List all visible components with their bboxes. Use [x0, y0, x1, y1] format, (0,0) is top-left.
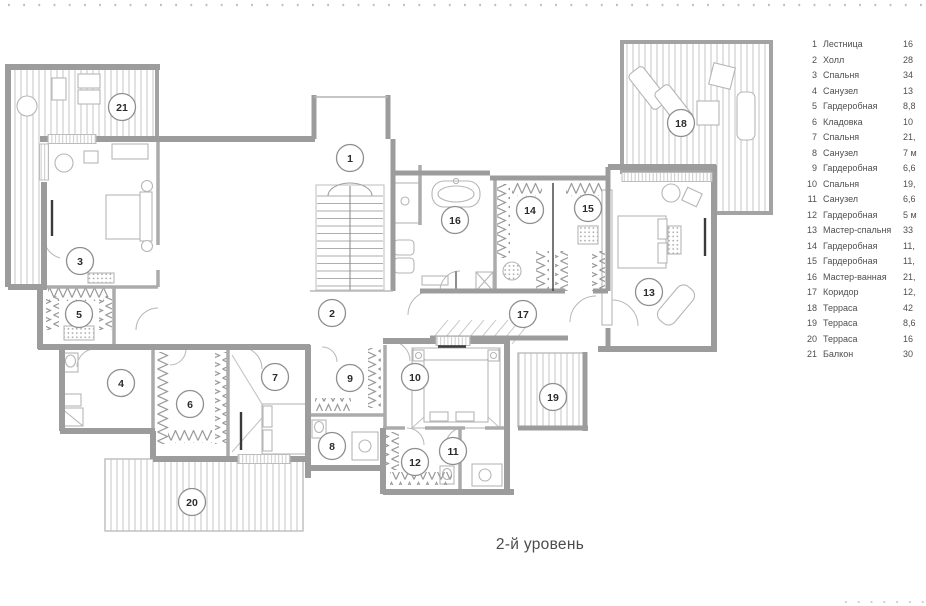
legend-row: 4Санузел13: [806, 84, 926, 100]
legend-room-area: 7 м: [903, 146, 917, 162]
legend-room-name: Холл: [823, 53, 844, 69]
room-legend: 1Лестница16 2Холл28 3Спальня34 4Санузел1…: [806, 37, 926, 363]
legend-room-name: Кладовка: [823, 115, 863, 131]
legend-room-number: 14: [806, 239, 817, 255]
room-circle-5: 5: [66, 301, 93, 328]
floorplan-drawing: 1 2 3 4 5 6 7 8 9 10 11 12 13 14 15 16 1…: [0, 0, 926, 606]
legend-room-area: 28: [903, 53, 913, 69]
svg-text:18: 18: [675, 118, 687, 130]
legend-row: 16Мастер-ванная21,: [806, 270, 926, 286]
svg-text:4: 4: [118, 378, 124, 390]
svg-text:9: 9: [347, 373, 353, 385]
legend-room-area: 8,8: [903, 99, 916, 115]
room-circle-8: 8: [319, 433, 346, 460]
legend-room-number: 11: [806, 192, 817, 208]
legend-room-number: 5: [806, 99, 817, 115]
legend-room-name: Санузел: [823, 192, 858, 208]
legend-room-area: 21,: [903, 270, 916, 286]
legend-room-area: 30: [903, 347, 913, 363]
legend-room-number: 9: [806, 161, 817, 177]
legend-row: 10Спальня19,: [806, 177, 926, 193]
legend-room-number: 8: [806, 146, 817, 162]
svg-text:15: 15: [582, 203, 594, 215]
legend-room-name: Спальня: [823, 68, 859, 84]
legend-room-name: Терраса: [823, 301, 858, 317]
svg-text:14: 14: [524, 205, 536, 217]
legend-room-name: Санузел: [823, 84, 858, 100]
room-circle-18: 18: [668, 110, 695, 137]
legend-room-name: Гардеробная: [823, 208, 877, 224]
legend-room-area: 11,: [903, 254, 915, 270]
legend-room-area: 42: [903, 301, 913, 317]
room-circle-1: 1: [337, 145, 364, 172]
svg-text:2: 2: [329, 308, 335, 320]
room-circle-12: 12: [402, 449, 429, 476]
room-circle-7: 7: [262, 364, 289, 391]
room-circle-20: 20: [179, 489, 206, 516]
svg-text:5: 5: [76, 309, 82, 321]
room-circle-4: 4: [108, 370, 135, 397]
room-circle-14: 14: [517, 197, 544, 224]
svg-text:19: 19: [547, 392, 559, 404]
legend-row: 14Гардеробная11,: [806, 239, 926, 255]
legend-room-number: 18: [806, 301, 817, 317]
legend-room-area: 12,: [903, 285, 916, 301]
legend-room-name: Мастер-спальня: [823, 223, 891, 239]
svg-text:7: 7: [272, 372, 278, 384]
svg-text:6: 6: [187, 399, 193, 411]
svg-text:1: 1: [347, 153, 353, 165]
legend-row: 11Санузел6,6: [806, 192, 926, 208]
legend-row: 1Лестница16: [806, 37, 926, 53]
room-circle-11: 11: [440, 438, 467, 465]
legend-room-number: 20: [806, 332, 817, 348]
svg-text:3: 3: [77, 256, 83, 268]
svg-text:16: 16: [449, 215, 461, 227]
svg-text:20: 20: [186, 497, 198, 509]
legend-room-number: 17: [806, 285, 817, 301]
room-circle-15: 15: [575, 195, 602, 222]
legend-room-name: Балкон: [823, 347, 853, 363]
legend-room-area: 19,: [903, 177, 916, 193]
legend-row: 13Мастер-спальня33: [806, 223, 926, 239]
legend-row: 18Терраса42: [806, 301, 926, 317]
room-circle-16: 16: [442, 207, 469, 234]
legend-row: 5Гардеробная8,8: [806, 99, 926, 115]
legend-row: 2Холл28: [806, 53, 926, 69]
legend-room-number: 15: [806, 254, 817, 270]
legend-room-number: 7: [806, 130, 817, 146]
legend-room-number: 10: [806, 177, 817, 193]
legend-row: 12Гардеробная5 м: [806, 208, 926, 224]
legend-room-number: 19: [806, 316, 817, 332]
floorplan-page: 1 2 3 4 5 6 7 8 9 10 11 12 13 14 15 16 1…: [0, 0, 926, 606]
legend-row: 3Спальня34: [806, 68, 926, 84]
svg-text:13: 13: [643, 287, 655, 299]
legend-room-name: Коридор: [823, 285, 859, 301]
legend-room-number: 1: [806, 37, 817, 53]
room-circle-17: 17: [510, 301, 537, 328]
svg-text:17: 17: [517, 309, 529, 321]
room-circle-3: 3: [67, 248, 94, 275]
room-circle-9: 9: [337, 365, 364, 392]
legend-room-name: Гардеробная: [823, 161, 877, 177]
legend-room-area: 5 м: [903, 208, 917, 224]
legend-room-name: Санузел: [823, 146, 858, 162]
legend-row: 20Терраса16: [806, 332, 926, 348]
legend-row: 21Балкон30: [806, 347, 926, 363]
floor-caption: 2-й уровень: [430, 536, 650, 554]
svg-text:21: 21: [116, 102, 128, 114]
legend-row: 7Спальня21,: [806, 130, 926, 146]
legend-room-area: 13: [903, 84, 913, 100]
legend-room-name: Лестница: [823, 37, 863, 53]
legend-row: 17Коридор12,: [806, 285, 926, 301]
legend-room-area: 21,: [903, 130, 916, 146]
room-circle-2: 2: [319, 300, 346, 327]
legend-room-name: Мастер-ванная: [823, 270, 887, 286]
legend-room-area: 8,6: [903, 316, 916, 332]
legend-room-name: Спальня: [823, 177, 859, 193]
legend-room-number: 4: [806, 84, 817, 100]
legend-room-area: 11,: [903, 239, 915, 255]
legend-room-name: Гардеробная: [823, 239, 877, 255]
legend-row: 15Гардеробная11,: [806, 254, 926, 270]
legend-room-number: 6: [806, 115, 817, 131]
legend-room-area: 16: [903, 332, 913, 348]
legend-room-name: Терраса: [823, 316, 858, 332]
legend-row: 9Гардеробная6,6: [806, 161, 926, 177]
legend-room-area: 10: [903, 115, 913, 131]
legend-row: 19Терраса8,6: [806, 316, 926, 332]
svg-text:11: 11: [447, 446, 458, 458]
room-circle-19: 19: [540, 384, 567, 411]
room-circle-10: 10: [402, 364, 429, 391]
legend-room-name: Гардеробная: [823, 99, 877, 115]
room-circle-13: 13: [636, 279, 663, 306]
legend-room-number: 21: [806, 347, 817, 363]
stairs: [316, 183, 384, 290]
room-circle-6: 6: [177, 391, 204, 418]
legend-row: 6Кладовка10: [806, 115, 926, 131]
legend-room-area: 16: [903, 37, 913, 53]
svg-text:8: 8: [329, 441, 335, 453]
legend-room-area: 6,6: [903, 192, 916, 208]
legend-room-name: Терраса: [823, 332, 858, 348]
legend-room-name: Спальня: [823, 130, 859, 146]
legend-room-number: 3: [806, 68, 817, 84]
room-circle-21: 21: [109, 94, 136, 121]
legend-room-number: 2: [806, 53, 817, 69]
legend-room-area: 6,6: [903, 161, 916, 177]
legend-room-number: 13: [806, 223, 817, 239]
svg-text:10: 10: [409, 372, 421, 384]
legend-room-area: 34: [903, 68, 913, 84]
legend-room-number: 16: [806, 270, 817, 286]
legend-room-name: Гардеробная: [823, 254, 877, 270]
legend-room-number: 12: [806, 208, 817, 224]
legend-row: 8Санузел7 м: [806, 146, 926, 162]
legend-room-area: 33: [903, 223, 913, 239]
svg-text:12: 12: [409, 457, 421, 469]
